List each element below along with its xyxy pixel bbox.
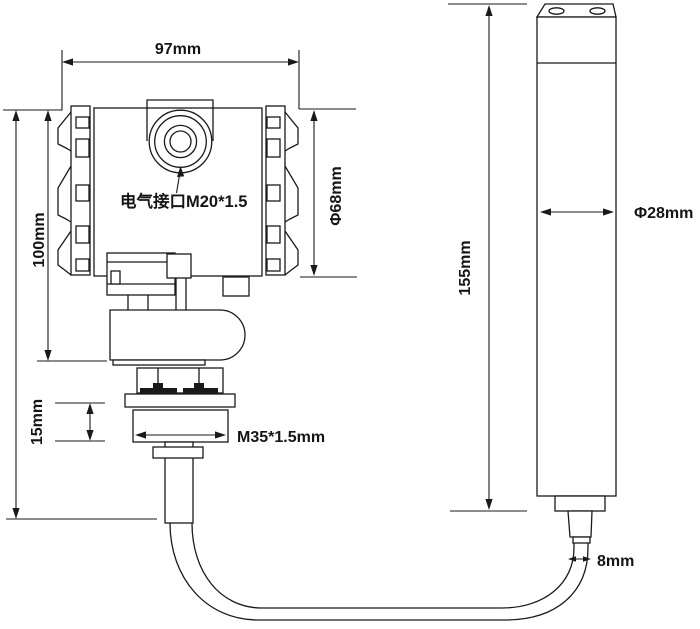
- cap-hole-right: [590, 8, 605, 14]
- cap-hole-left: [549, 8, 564, 14]
- seal-right: [183, 388, 218, 393]
- dim-probe-155: 155mm: [448, 4, 527, 511]
- process-connection: [125, 368, 235, 523]
- yoke-base-strip: [113, 360, 205, 365]
- gland-tip: [573, 537, 590, 543]
- terminal-block: [167, 254, 191, 278]
- thread-spec-label: M35*1.5mm: [237, 429, 325, 446]
- probe-body: [537, 17, 616, 496]
- cable-gland: [568, 511, 592, 537]
- dim-15-label: 15mm: [29, 399, 46, 445]
- dimension-drawing-page: 97mm 100mm Φ68mm 电气接口M20*1.5 15mm: [0, 0, 700, 629]
- right-side-cover: [266, 106, 298, 275]
- dim-100-label: 100mm: [31, 212, 48, 267]
- technical-drawing: 97mm 100mm Φ68mm 电气接口M20*1.5 15mm: [0, 0, 700, 629]
- dim-phi28-label: Φ28mm: [634, 205, 693, 222]
- electrical-port-label: 电气接口M20*1.5: [120, 191, 247, 211]
- collar: [153, 447, 203, 458]
- dim-phi68-label: Φ68mm: [328, 166, 345, 225]
- thread-body: [133, 410, 228, 442]
- dim-cable-8: 8mm: [568, 553, 634, 570]
- probe-assembly: [537, 4, 616, 543]
- cable-inner-edge: [192, 523, 574, 608]
- transmitter-assembly: [58, 100, 298, 523]
- seal-left: [140, 388, 177, 393]
- yoke: [110, 310, 245, 360]
- dim-thread-15: 15mm: [29, 399, 105, 445]
- dim-155-label: 155mm: [457, 240, 474, 295]
- side-step: [223, 277, 249, 296]
- probe-neck: [555, 496, 605, 511]
- washer-plate: [125, 394, 235, 407]
- left-side-cover: [58, 106, 90, 275]
- cable: [170, 523, 588, 620]
- dim-phi68: Φ68mm: [299, 109, 357, 277]
- dim-97-label: 97mm: [155, 41, 201, 58]
- dim-8-label: 8mm: [597, 553, 634, 570]
